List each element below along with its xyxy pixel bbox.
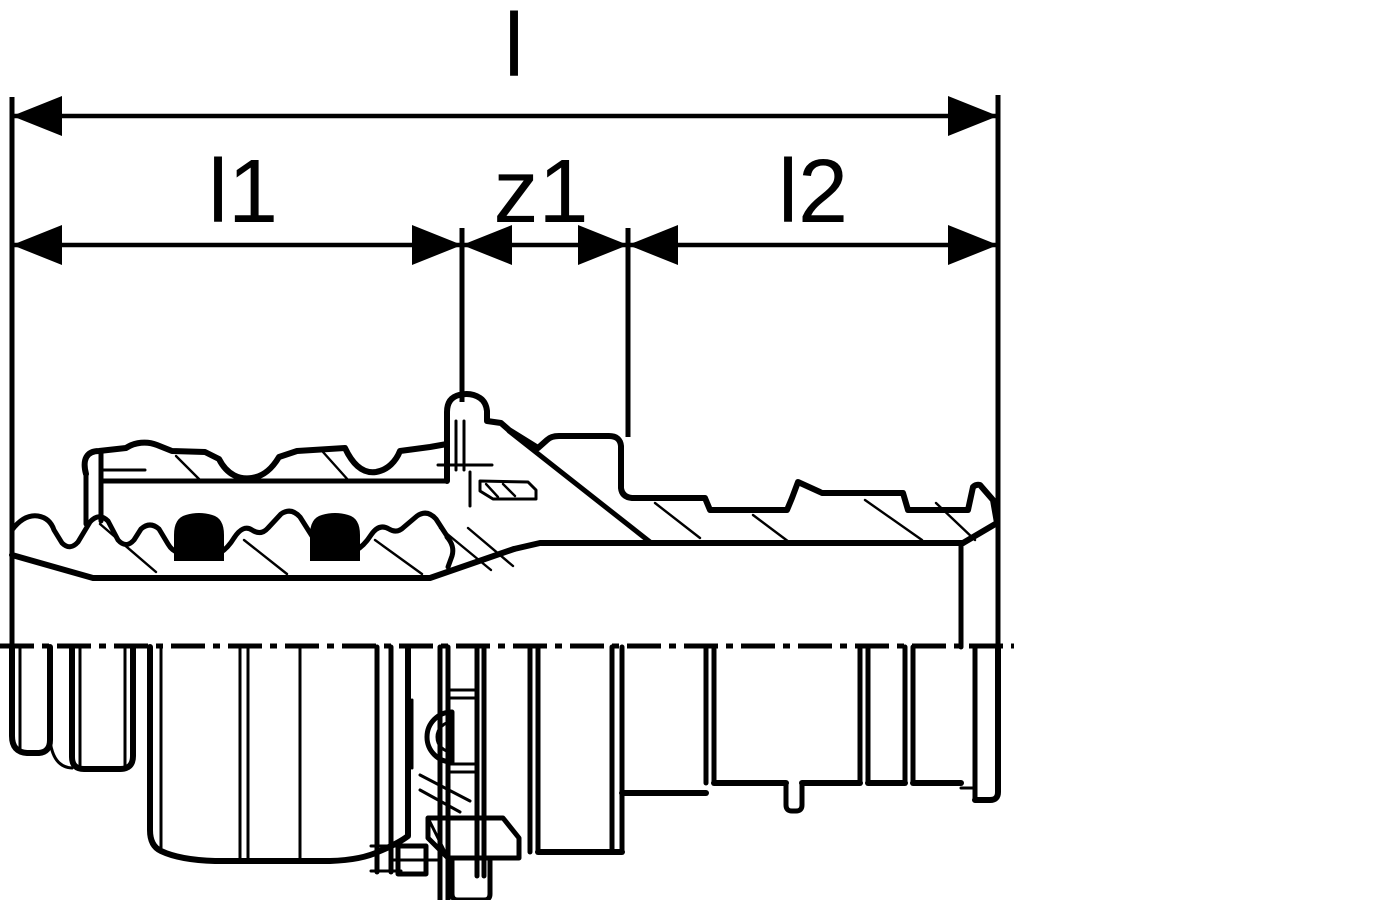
press-sleeve-section (12, 443, 514, 578)
sleeve-corrugation-2 (220, 511, 312, 553)
fitting-body-section (438, 394, 997, 647)
sleeve-corrugation-1 (12, 516, 179, 553)
sleeve-bottom-edge (12, 549, 514, 578)
dim-label-l1: l1 (208, 142, 278, 242)
dimension-l1: l1 (12, 142, 462, 265)
arrowhead-l-left (12, 96, 62, 136)
dim-label-l2: l2 (778, 142, 848, 242)
tooth-tab (786, 783, 802, 811)
window-frame-top (448, 690, 477, 698)
sleeve-end-curve (447, 537, 453, 567)
sleeve-corrugation-3 (355, 513, 447, 551)
window-frame-bottom (448, 764, 477, 772)
arrowhead-l-right (948, 96, 998, 136)
spigot-bottom (975, 647, 998, 800)
o-ring-seal-left (175, 514, 223, 560)
section-view (12, 394, 997, 647)
sleeve-cap-link (50, 740, 72, 768)
dimension-overall-length: l (12, 0, 998, 136)
dimension-l2: l2 (628, 142, 998, 265)
fitting-dimension-drawing: l l1 z1 l2 (0, 0, 1400, 900)
block-chamfer-a (420, 775, 470, 801)
dimension-z1: z1 (462, 142, 628, 265)
dim-label-z1: z1 (493, 142, 588, 242)
sleeve-top-edge (85, 443, 447, 479)
body-bore-bottom-edge (514, 543, 963, 549)
technical-drawing-page: l l1 z1 l2 (0, 0, 1400, 900)
body-exterior (530, 647, 998, 852)
sleeve-body (150, 647, 408, 861)
arrowhead-l1-right (412, 225, 462, 265)
sleeve-end-cap (12, 647, 50, 753)
arrowhead-l1-left (12, 225, 62, 265)
arrowhead-l2-left (628, 225, 678, 265)
external-view (12, 647, 998, 900)
sleeve-exterior (12, 647, 440, 872)
body-collar-and-top-profile (447, 394, 997, 543)
o-ring-seal-right (311, 514, 359, 560)
dim-label-l: l (504, 0, 524, 96)
press-indicator-assembly (398, 647, 519, 900)
arrowhead-l2-right (948, 225, 998, 265)
body-cone-edge (509, 431, 650, 542)
